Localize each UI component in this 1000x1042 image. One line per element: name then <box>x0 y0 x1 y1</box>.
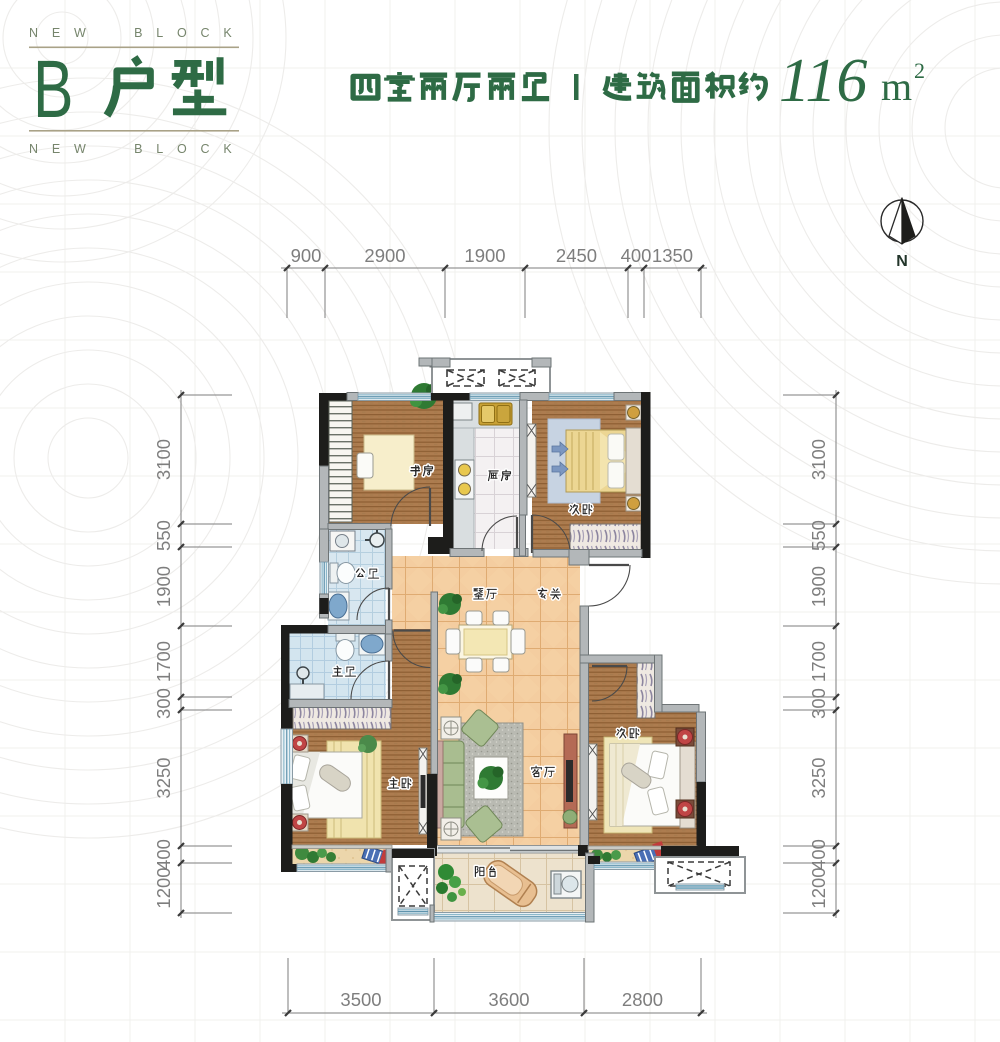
svg-text:3500: 3500 <box>340 989 381 1010</box>
svg-text:400: 400 <box>808 839 829 870</box>
svg-text:1200: 1200 <box>153 867 174 908</box>
svg-text:2800: 2800 <box>622 989 663 1010</box>
svg-text:1900: 1900 <box>808 566 829 607</box>
svg-text:1900: 1900 <box>153 566 174 607</box>
svg-text:m: m <box>881 64 912 109</box>
svg-text:400: 400 <box>621 245 652 266</box>
svg-text:3600: 3600 <box>488 989 529 1010</box>
svg-text:3250: 3250 <box>153 757 174 798</box>
svg-text:116: 116 <box>779 47 867 115</box>
svg-text:1350: 1350 <box>652 245 693 266</box>
svg-text:NEW BLOCK: NEW BLOCK <box>29 142 246 156</box>
svg-text:1900: 1900 <box>464 245 505 266</box>
svg-text:2: 2 <box>914 58 925 83</box>
svg-text:3250: 3250 <box>808 757 829 798</box>
svg-text:550: 550 <box>153 520 174 551</box>
svg-text:2450: 2450 <box>556 245 597 266</box>
svg-text:NEW BLOCK: NEW BLOCK <box>29 26 246 40</box>
svg-text:400: 400 <box>153 839 174 870</box>
svg-text:1700: 1700 <box>808 641 829 682</box>
svg-text:3100: 3100 <box>153 439 174 480</box>
svg-text:300: 300 <box>153 688 174 719</box>
svg-text:1200: 1200 <box>808 867 829 908</box>
svg-text:550: 550 <box>808 520 829 551</box>
svg-text:N: N <box>896 253 908 270</box>
svg-text:3100: 3100 <box>808 439 829 480</box>
svg-text:2900: 2900 <box>364 245 405 266</box>
svg-text:300: 300 <box>808 688 829 719</box>
svg-text:1700: 1700 <box>153 641 174 682</box>
svg-text:B: B <box>33 44 73 135</box>
svg-text:900: 900 <box>291 245 322 266</box>
